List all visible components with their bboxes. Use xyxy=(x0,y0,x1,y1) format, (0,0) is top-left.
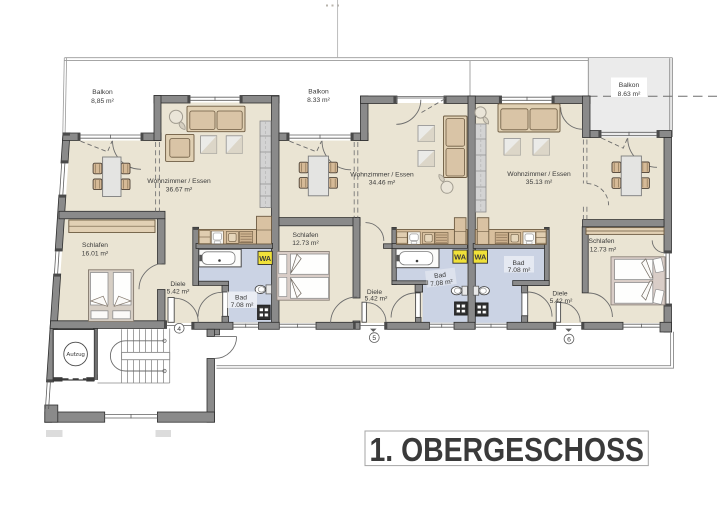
svg-text:Schlafen: Schlafen xyxy=(588,238,614,245)
svg-text:16.01 m²: 16.01 m² xyxy=(82,251,109,258)
svg-text:8.63 m²: 8.63 m² xyxy=(618,91,641,98)
svg-text:1. OBERGESCHOSS: 1. OBERGESCHOSS xyxy=(370,431,645,468)
svg-text:WA: WA xyxy=(454,253,467,262)
svg-text:5.42 m²: 5.42 m² xyxy=(167,289,190,296)
svg-text:Schlafen: Schlafen xyxy=(292,232,318,239)
svg-text:5: 5 xyxy=(372,335,376,342)
svg-text:34.46 m²: 34.46 m² xyxy=(369,180,396,187)
svg-text:Balkon: Balkon xyxy=(308,88,329,95)
svg-text:5.42 m²: 5.42 m² xyxy=(365,295,388,302)
svg-text:Wohnzimmer / Essen: Wohnzimmer / Essen xyxy=(507,171,571,178)
svg-text:Aufzug: Aufzug xyxy=(66,352,84,358)
svg-text:36.67 m²: 36.67 m² xyxy=(166,187,193,194)
svg-text:8,85 m²: 8,85 m² xyxy=(91,98,114,105)
svg-text:Bad: Bad xyxy=(513,260,525,267)
svg-text:Wohnzimmer / Essen: Wohnzimmer / Essen xyxy=(350,172,414,179)
svg-text:12.73 m²: 12.73 m² xyxy=(292,240,319,247)
svg-text:4: 4 xyxy=(177,326,181,333)
svg-text:6: 6 xyxy=(567,337,571,344)
svg-text:5.42 m²: 5.42 m² xyxy=(550,298,573,305)
svg-text:8.33 m²: 8.33 m² xyxy=(307,97,330,104)
svg-text:WA: WA xyxy=(259,254,272,263)
svg-text:WA: WA xyxy=(474,253,487,262)
svg-text:Balkon: Balkon xyxy=(92,89,113,96)
svg-text:Diele: Diele xyxy=(170,281,186,288)
svg-text:7.08 m²: 7.08 m² xyxy=(508,267,531,274)
svg-text:7.08 m²: 7.08 m² xyxy=(231,302,254,309)
svg-text:Bad: Bad xyxy=(235,295,247,302)
svg-text:Schlafen: Schlafen xyxy=(82,242,108,249)
svg-text:Diele: Diele xyxy=(552,291,568,298)
svg-text:Balkon: Balkon xyxy=(619,82,640,89)
svg-text:Wohnzimmer / Essen: Wohnzimmer / Essen xyxy=(147,178,211,185)
svg-text:35.13 m²: 35.13 m² xyxy=(526,179,553,186)
svg-text:12.73 m²: 12.73 m² xyxy=(590,247,617,254)
